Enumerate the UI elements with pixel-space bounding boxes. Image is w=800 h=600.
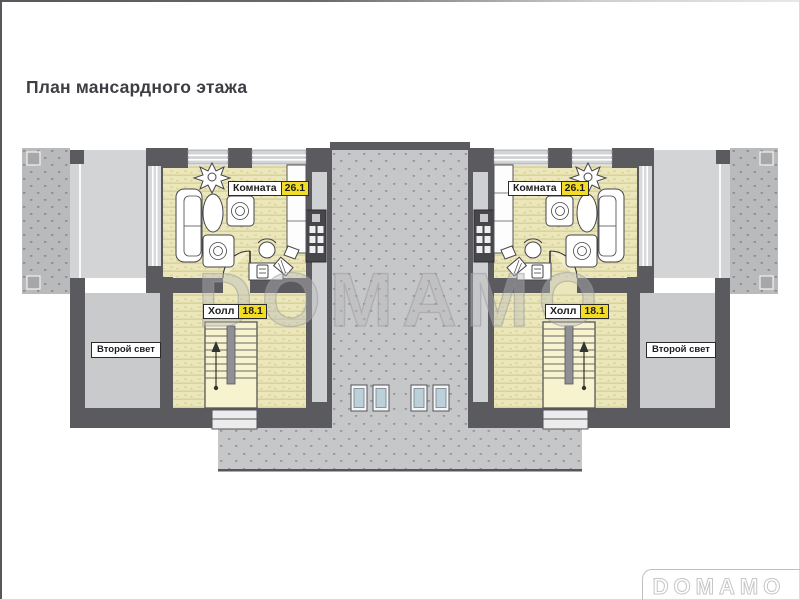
hall-area-badge: 18.1 — [239, 304, 266, 319]
room-area-badge: 26.1 — [562, 181, 589, 196]
hall-name: Холл — [545, 304, 581, 319]
room-label-left: Комната 26.1 — [228, 181, 309, 196]
second-light-label-left: Второй свет — [91, 342, 161, 358]
second-light-label-right: Второй свет — [646, 342, 716, 358]
room-label-right: Комната 26.1 — [508, 181, 589, 196]
hall-area-badge: 18.1 — [581, 304, 608, 319]
hall-name: Холл — [203, 304, 239, 319]
room-name: Комната — [508, 181, 562, 196]
watermark-text: DOMAMO — [198, 258, 607, 343]
hall-label-left: Холл 18.1 — [203, 304, 267, 319]
title-block — [642, 569, 800, 600]
drawing-sheet: План мансардного этажа — [0, 0, 800, 600]
room-name: Комната — [228, 181, 282, 196]
hall-label-right: Холл 18.1 — [545, 304, 609, 319]
floor-plan: DOMAMO DOMAMO — [0, 0, 800, 600]
room-area-badge: 26.1 — [282, 181, 309, 196]
